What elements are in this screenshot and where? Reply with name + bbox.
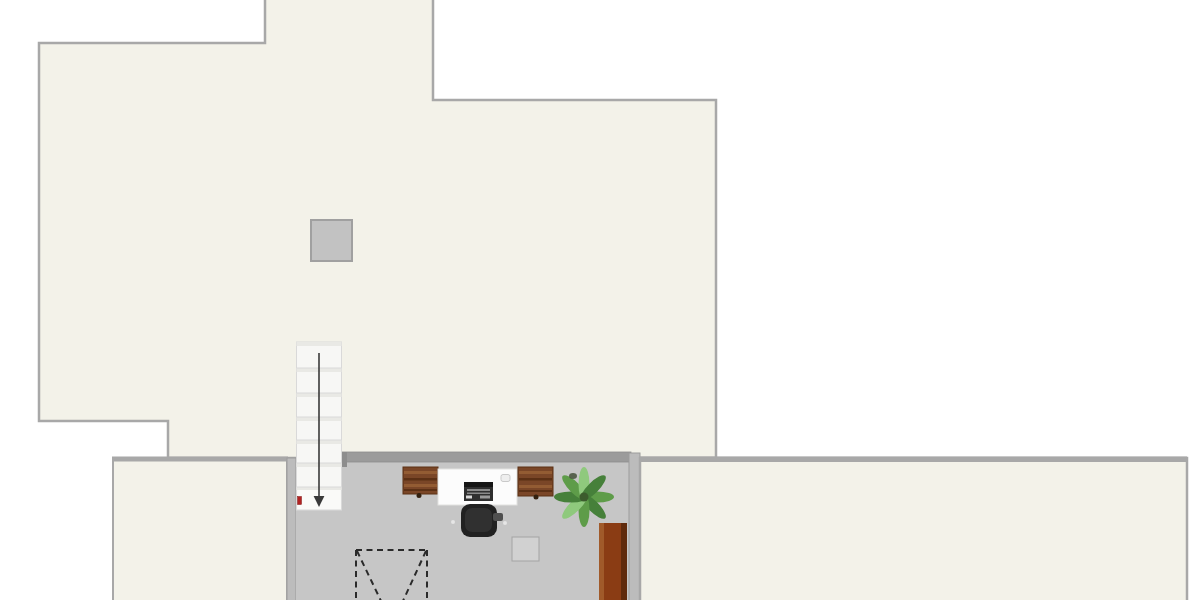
gray-room-top-wall [337, 452, 631, 462]
chimney-block[interactable] [311, 220, 352, 261]
plant-center [580, 493, 589, 502]
desk-right-grain-3 [519, 485, 552, 488]
desk-left-grain-2 [404, 478, 437, 481]
printer-stripe-1 [467, 489, 490, 491]
lower-right-room-top-wall [640, 457, 1187, 463]
desk-right-knob [534, 495, 539, 500]
lower-right-room[interactable] [640, 457, 1187, 600]
chair-wheel-right [503, 521, 507, 525]
printer-button-right [480, 496, 490, 499]
lower-left-room-top-wall [112, 457, 288, 462]
plant-dark-spot [569, 473, 577, 479]
floor-plan-canvas [0, 0, 1200, 600]
desk-left-grain-4 [404, 489, 437, 491]
stair-tread-shade-1 [297, 342, 342, 346]
red-entry-marker [298, 497, 302, 505]
white-desk[interactable] [438, 469, 517, 505]
lower-left-room[interactable] [112, 457, 296, 600]
lower-left-room-floor [113, 458, 287, 600]
desk-left-knob [417, 493, 422, 498]
desk-right-grain-1 [519, 471, 552, 474]
desk-left-grain-3 [404, 484, 437, 487]
square-side-table[interactable] [512, 537, 539, 561]
printer-button-left [466, 496, 472, 499]
wardrobe-body [604, 523, 621, 600]
lower-left-room-right-wall [287, 458, 296, 600]
chair-wheel-left [451, 520, 455, 524]
desk-left-grain-1 [404, 471, 437, 474]
potted-palm-plant[interactable] [554, 467, 614, 527]
desk-right-grain-4 [519, 490, 552, 492]
small-device[interactable] [501, 475, 510, 482]
printer-stripe-2 [467, 493, 490, 495]
desk-right-grain-2 [519, 478, 552, 481]
lower-right-room-floor [640, 458, 1187, 600]
printer-top [464, 482, 493, 487]
wardrobe-highlight [599, 523, 604, 600]
chair-seat [465, 508, 492, 532]
wood-desk-left[interactable] [403, 467, 438, 498]
wardrobe-shadow [621, 523, 627, 600]
floor-plan-stage [0, 0, 1200, 600]
gray-room-right-wall [629, 453, 640, 600]
wood-desk-right[interactable] [518, 467, 553, 500]
wood-wardrobe[interactable] [599, 523, 627, 600]
printer-device[interactable] [464, 482, 493, 501]
staircase-down[interactable] [297, 342, 342, 510]
chair-armrest [493, 513, 503, 521]
